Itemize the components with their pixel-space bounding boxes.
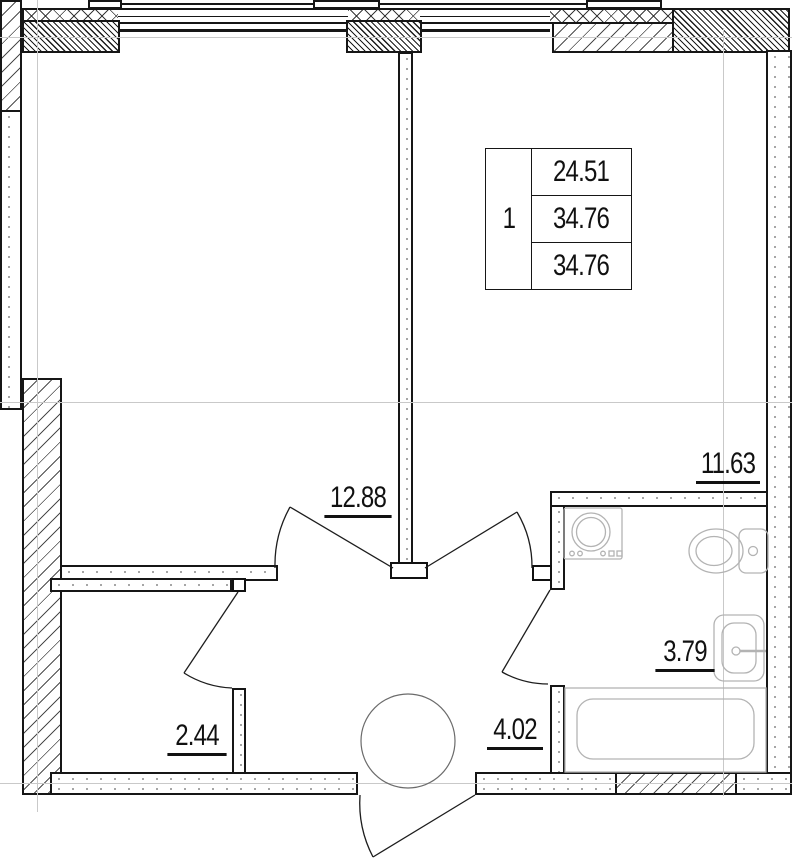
unit-overall-area: 34.76 (553, 249, 609, 283)
floor-plan: 12.88 11.63 2.44 4.02 3.79 1 24.51 34.76… (0, 0, 792, 860)
round-table (361, 694, 455, 788)
unit-area-cell: 34.76 (531, 242, 633, 290)
bathtub (565, 688, 766, 772)
area-label-bathroom: 3.79 (655, 636, 714, 672)
unit-total-area: 34.76 (553, 202, 609, 236)
unit-area-cell: 24.51 (531, 148, 633, 196)
doors-and-fixtures-layer (0, 0, 792, 860)
area-label-storage: 2.44 (167, 720, 226, 756)
area-label-hallway: 4.02 (487, 714, 543, 750)
area-label-living-room: 12.88 (324, 482, 391, 518)
unit-living-area: 24.51 (553, 155, 609, 189)
unit-number-cell: 1 (485, 148, 532, 290)
door-swing-kitchen (425, 512, 532, 568)
area-label-kitchen: 11.63 (696, 448, 760, 484)
unit-areas-column: 24.51 34.76 34.76 (531, 148, 633, 290)
unit-area-cell: 34.76 (531, 195, 633, 243)
sink (714, 615, 766, 681)
unit-number: 1 (502, 202, 515, 236)
door-swing-bathroom (502, 590, 550, 684)
door-swing-entrance (360, 795, 475, 857)
toilet (689, 529, 768, 573)
washing-machine (564, 508, 622, 559)
unit-info-table: 1 24.51 34.76 34.76 (485, 148, 632, 290)
door-swing-storage (184, 592, 238, 688)
